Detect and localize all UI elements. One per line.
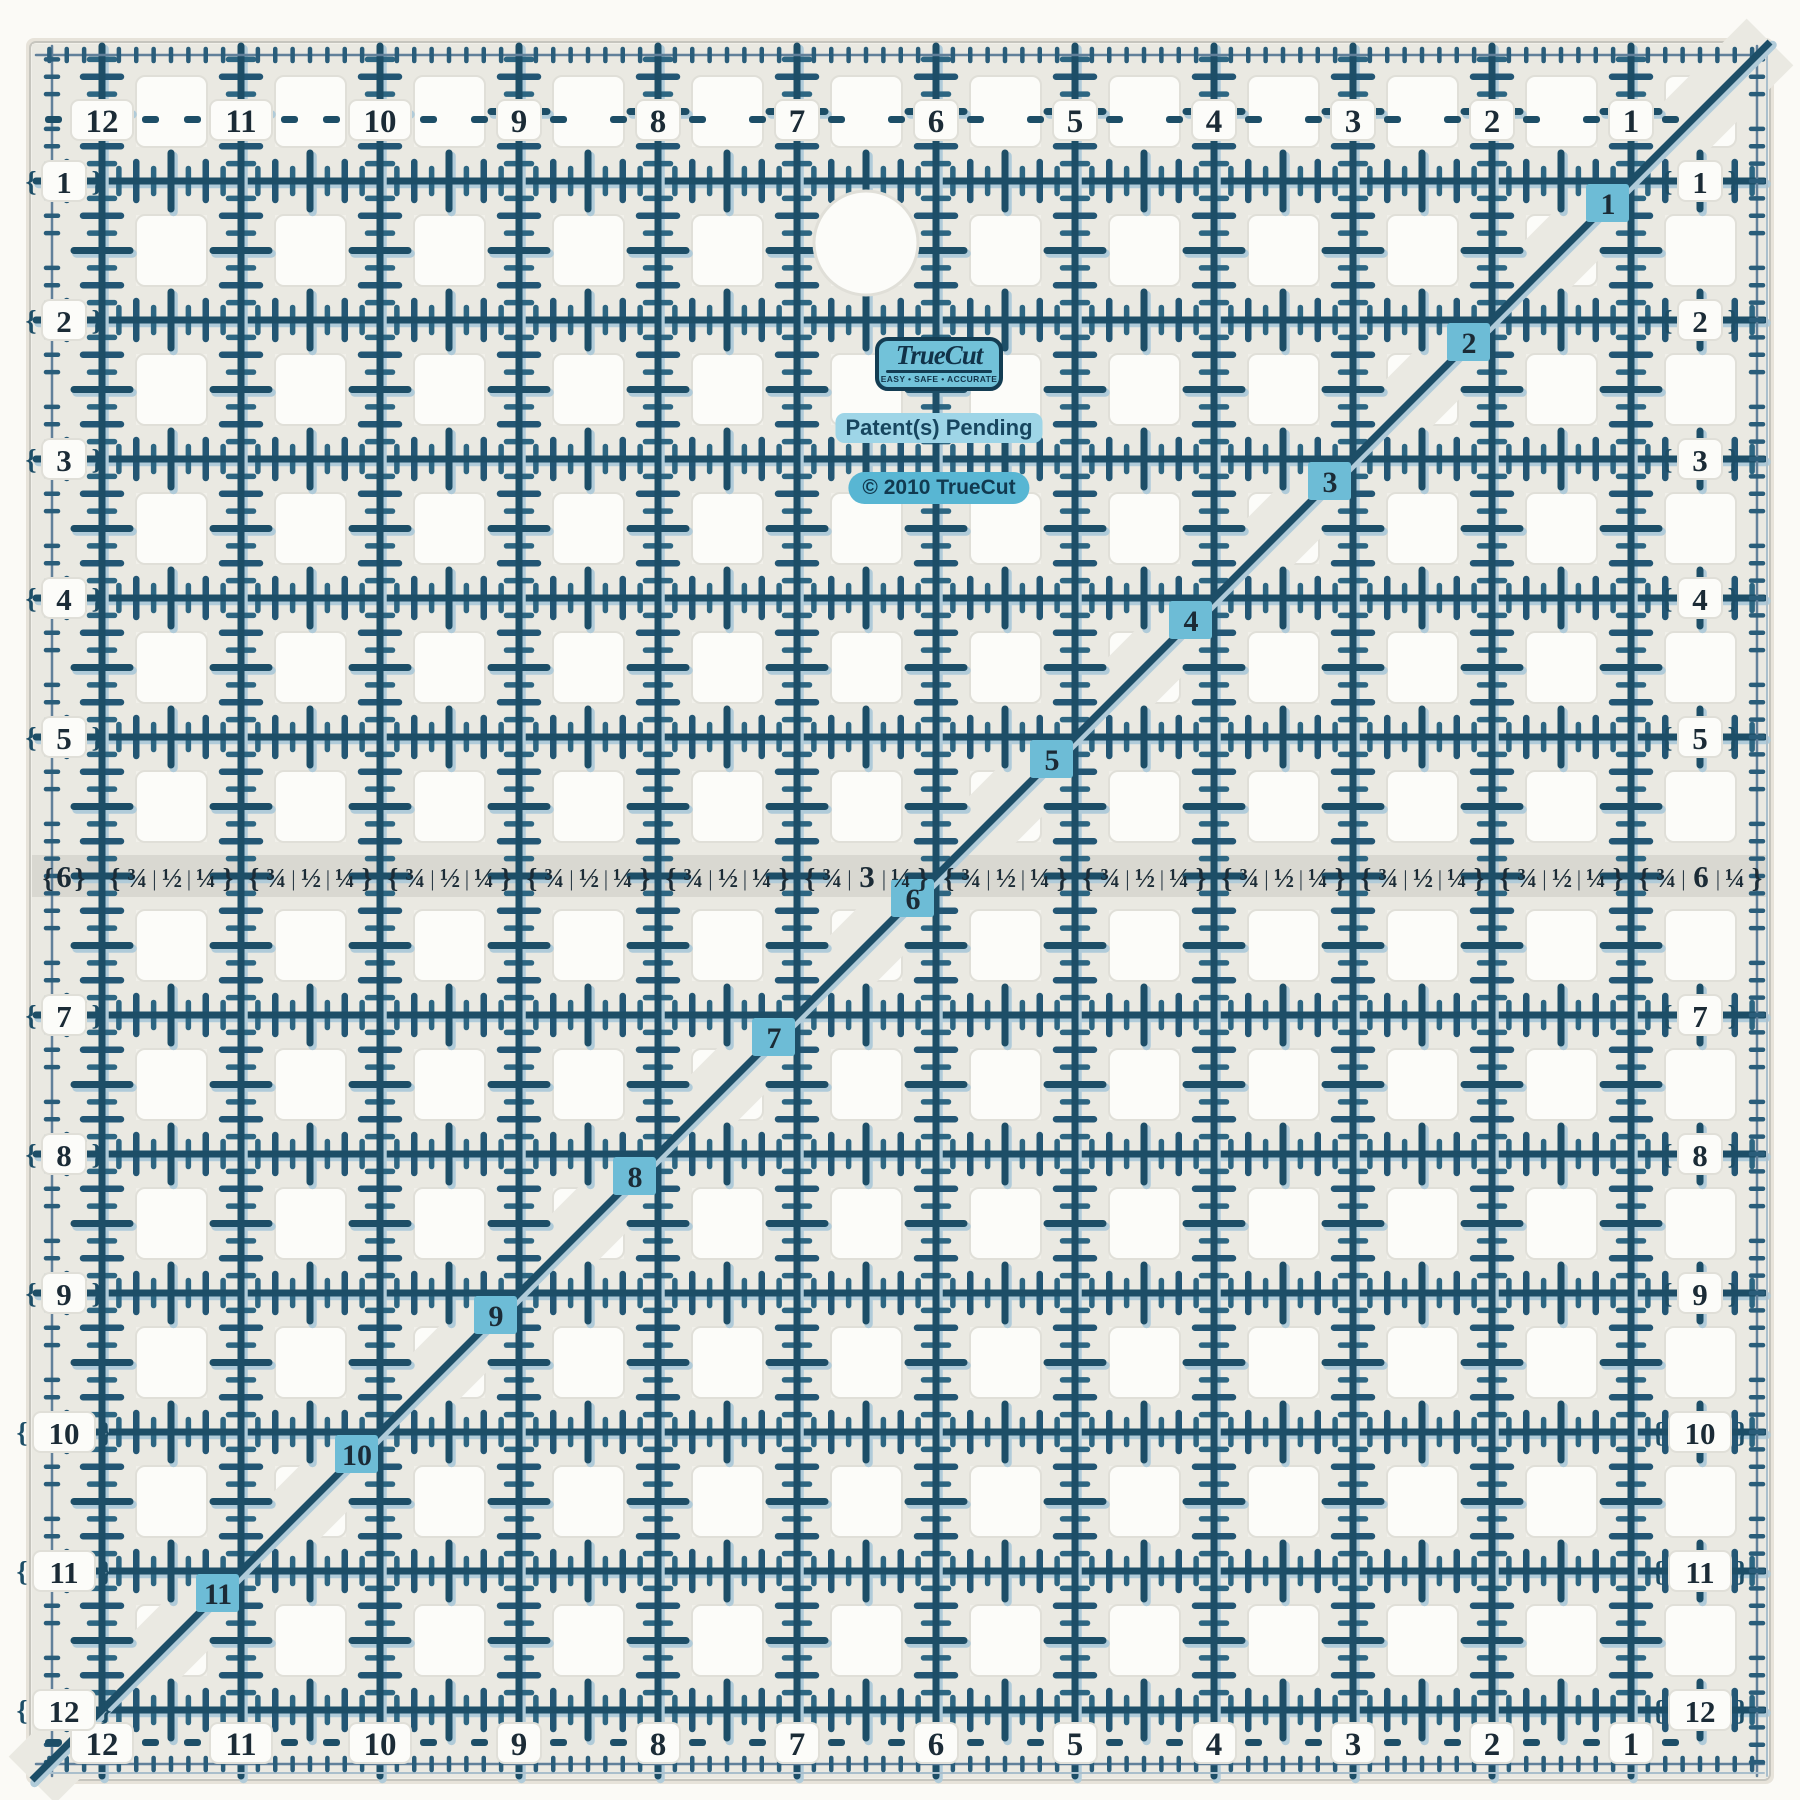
svg-text:3: 3: [1345, 104, 1362, 140]
svg-text:{: {: [1652, 1696, 1663, 1727]
svg-text:}: }: [1727, 1001, 1738, 1032]
svg-text:}: }: [1727, 167, 1738, 198]
svg-text:}: }: [1335, 863, 1346, 893]
svg-text:7: 7: [56, 999, 72, 1034]
svg-text:11: 11: [1685, 1555, 1714, 1590]
svg-text:3: 3: [1692, 443, 1708, 478]
svg-text:}: }: [501, 863, 512, 893]
svg-text:}: }: [91, 1140, 102, 1171]
svg-text:1: 1: [1692, 165, 1708, 200]
svg-text:10: 10: [364, 104, 397, 140]
svg-text:¼: ¼: [1725, 863, 1745, 893]
svg-text:{: {: [1652, 1418, 1663, 1449]
svg-text:{: {: [1500, 863, 1511, 893]
svg-text:|: |: [1542, 866, 1546, 891]
svg-text:7: 7: [1692, 999, 1708, 1034]
svg-text:}: }: [100, 1696, 111, 1727]
svg-text:|: |: [882, 866, 886, 891]
svg-text:6: 6: [928, 1727, 945, 1763]
svg-text:½: ½: [440, 863, 460, 893]
svg-text:8: 8: [628, 1161, 643, 1194]
svg-text:5: 5: [1067, 104, 1084, 140]
svg-text:|: |: [1125, 866, 1129, 891]
fraction-strip-labels: {6}{¾|½|¼}{¾|½|¼}{¾|½|¼}{¾|½|¼}{¾|½|¼}{¾…: [43, 859, 1763, 894]
svg-text:4: 4: [56, 582, 72, 617]
svg-text:}: }: [1727, 445, 1738, 476]
svg-text:{: {: [1661, 584, 1672, 615]
svg-text:2: 2: [1462, 327, 1477, 360]
svg-text:|: |: [708, 866, 712, 891]
patent-pending-text: Patent(s) Pending: [835, 413, 1042, 443]
svg-text:6: 6: [1693, 859, 1709, 894]
svg-text:|: |: [1021, 866, 1025, 891]
svg-text:}: }: [91, 584, 102, 615]
svg-text:|: |: [1160, 866, 1164, 891]
svg-text:|: |: [326, 866, 330, 891]
svg-text:½: ½: [1552, 863, 1572, 893]
svg-text:11: 11: [225, 104, 256, 140]
svg-text:¾: ¾: [1100, 863, 1120, 893]
svg-text:¼: ¼: [891, 863, 911, 893]
svg-text:9: 9: [1692, 1277, 1708, 1312]
svg-text:{: {: [1661, 1140, 1672, 1171]
svg-text:10: 10: [342, 1439, 372, 1472]
svg-text:}: }: [1727, 723, 1738, 754]
svg-text:{: {: [1639, 863, 1650, 893]
svg-text:}: }: [1057, 863, 1068, 893]
svg-text:|: |: [152, 866, 156, 891]
svg-text:8: 8: [56, 1138, 72, 1173]
svg-text:¼: ¼: [613, 863, 633, 893]
svg-text:{: {: [25, 1001, 36, 1032]
svg-text:¾: ¾: [1378, 863, 1398, 893]
svg-text:}: }: [779, 863, 790, 893]
svg-text:|: |: [569, 866, 573, 891]
svg-text:1: 1: [1623, 1727, 1640, 1763]
svg-text:6: 6: [56, 859, 72, 894]
svg-text:|: |: [847, 866, 851, 891]
svg-text:}: }: [75, 863, 86, 893]
quilting-ruler-grid: 121110987654321121110987654321{}1{}2{}3{…: [0, 0, 1800, 1800]
circle-notch: [814, 191, 918, 295]
svg-text:2: 2: [1484, 1727, 1501, 1763]
svg-text:}: }: [918, 863, 929, 893]
svg-text:{: {: [25, 445, 36, 476]
svg-text:11: 11: [204, 1578, 232, 1611]
svg-text:9: 9: [489, 1300, 504, 1333]
svg-text:}: }: [91, 1279, 102, 1310]
svg-text:¾: ¾: [1517, 863, 1537, 893]
svg-text:}: }: [1196, 863, 1207, 893]
svg-text:7: 7: [789, 1727, 806, 1763]
copyright-badge: © 2010 TrueCut: [848, 472, 1029, 504]
svg-text:¾: ¾: [1239, 863, 1259, 893]
svg-text:¼: ¼: [474, 863, 494, 893]
svg-text:8: 8: [650, 1727, 667, 1763]
svg-text:}: }: [1474, 863, 1485, 893]
svg-text:5: 5: [1045, 744, 1060, 777]
svg-text:}: }: [100, 1418, 111, 1449]
svg-text:|: |: [1577, 866, 1581, 891]
svg-text:|: |: [187, 866, 191, 891]
svg-text:½: ½: [718, 863, 738, 893]
svg-text:{: {: [25, 1279, 36, 1310]
svg-text:9: 9: [56, 1277, 72, 1312]
svg-text:¾: ¾: [405, 863, 425, 893]
svg-text:|: |: [1681, 866, 1685, 891]
svg-text:3: 3: [56, 443, 72, 478]
svg-text:{: {: [1083, 863, 1094, 893]
svg-text:¾: ¾: [266, 863, 286, 893]
svg-text:¾: ¾: [822, 863, 842, 893]
svg-text:11: 11: [49, 1555, 78, 1590]
svg-text:}: }: [640, 863, 651, 893]
svg-text:{: {: [110, 863, 121, 893]
svg-text:}: }: [91, 723, 102, 754]
svg-text:1: 1: [1623, 104, 1640, 140]
svg-text:5: 5: [1692, 721, 1708, 756]
svg-text:|: |: [986, 866, 990, 891]
truecut-logo-badge: TrueCut EASY • SAFE • ACCURATE: [875, 337, 1003, 391]
svg-text:}: }: [1727, 306, 1738, 337]
svg-text:|: |: [1403, 866, 1407, 891]
svg-text:{: {: [16, 1557, 27, 1588]
svg-text:½: ½: [1274, 863, 1294, 893]
svg-text:|: |: [465, 866, 469, 891]
svg-text:{: {: [1661, 167, 1672, 198]
svg-text:3: 3: [859, 859, 875, 894]
svg-text:½: ½: [579, 863, 599, 893]
svg-text:}: }: [1736, 1557, 1747, 1588]
svg-text:¼: ¼: [1586, 863, 1606, 893]
svg-text:{: {: [805, 863, 816, 893]
svg-text:{: {: [666, 863, 677, 893]
svg-text:¼: ¼: [1447, 863, 1467, 893]
svg-text:4: 4: [1206, 104, 1223, 140]
svg-text:}: }: [91, 306, 102, 337]
svg-text:¾: ¾: [683, 863, 703, 893]
svg-text:}: }: [91, 167, 102, 198]
svg-text:{: {: [1661, 1001, 1672, 1032]
svg-text:10: 10: [49, 1416, 80, 1451]
svg-text:2: 2: [1692, 304, 1708, 339]
svg-text:{: {: [944, 863, 955, 893]
svg-text:½: ½: [996, 863, 1016, 893]
svg-text:¼: ¼: [196, 863, 216, 893]
svg-text:}: }: [1736, 1418, 1747, 1449]
svg-text:{: {: [25, 306, 36, 337]
svg-text:}: }: [1736, 1696, 1747, 1727]
svg-text:{: {: [43, 863, 54, 893]
svg-text:¼: ¼: [335, 863, 355, 893]
svg-text:{: {: [1222, 863, 1233, 893]
svg-text:4: 4: [1692, 582, 1708, 617]
svg-text:9: 9: [511, 104, 528, 140]
svg-text:1: 1: [1601, 188, 1616, 221]
svg-text:{: {: [25, 584, 36, 615]
svg-text:8: 8: [1692, 1138, 1708, 1173]
svg-text:12: 12: [86, 104, 119, 140]
svg-text:½: ½: [1135, 863, 1155, 893]
svg-text:}: }: [91, 445, 102, 476]
svg-text:1: 1: [56, 165, 72, 200]
truecut-wordmark: TrueCut: [879, 342, 999, 369]
svg-text:{: {: [1661, 723, 1672, 754]
svg-text:|: |: [291, 866, 295, 891]
svg-text:½: ½: [301, 863, 321, 893]
svg-text:12: 12: [49, 1694, 80, 1729]
svg-text:½: ½: [162, 863, 182, 893]
svg-text:|: |: [1438, 866, 1442, 891]
svg-text:|: |: [1716, 866, 1720, 891]
svg-text:4: 4: [1184, 605, 1199, 638]
svg-text:¾: ¾: [1656, 863, 1676, 893]
svg-text:{: {: [16, 1696, 27, 1727]
logo-tagline: EASY • SAFE • ACCURATE: [879, 374, 999, 385]
svg-text:|: |: [604, 866, 608, 891]
svg-text:¼: ¼: [1030, 863, 1050, 893]
svg-text:5: 5: [1067, 1727, 1084, 1763]
svg-text:}: }: [1752, 863, 1763, 893]
svg-text:2: 2: [56, 304, 72, 339]
svg-text:¾: ¾: [544, 863, 564, 893]
svg-text:10: 10: [364, 1727, 397, 1763]
logo-divider: [886, 370, 992, 373]
svg-text:3: 3: [1345, 1727, 1362, 1763]
svg-text:7: 7: [767, 1022, 782, 1055]
svg-text:½: ½: [1413, 863, 1433, 893]
svg-text:{: {: [527, 863, 538, 893]
svg-text:4: 4: [1206, 1727, 1223, 1763]
svg-text:{: {: [1661, 445, 1672, 476]
svg-text:{: {: [249, 863, 260, 893]
svg-text:}: }: [362, 863, 373, 893]
svg-text:¼: ¼: [1308, 863, 1328, 893]
svg-text:}: }: [100, 1557, 111, 1588]
svg-text:10: 10: [1685, 1416, 1716, 1451]
svg-text:}: }: [1727, 1279, 1738, 1310]
svg-text:3: 3: [1323, 466, 1338, 499]
svg-text:|: |: [1299, 866, 1303, 891]
svg-text:|: |: [743, 866, 747, 891]
svg-text:}: }: [223, 863, 234, 893]
svg-text:|: |: [430, 866, 434, 891]
svg-text:}: }: [1613, 863, 1624, 893]
svg-text:{: {: [1661, 306, 1672, 337]
svg-text:2: 2: [1484, 104, 1501, 140]
svg-text:{: {: [1361, 863, 1372, 893]
svg-text:}: }: [91, 1001, 102, 1032]
svg-text:{: {: [1652, 1557, 1663, 1588]
svg-text:{: {: [388, 863, 399, 893]
svg-text:}: }: [1727, 584, 1738, 615]
svg-text:{: {: [25, 167, 36, 198]
svg-text:}: }: [1727, 1140, 1738, 1171]
svg-text:|: |: [1264, 866, 1268, 891]
svg-text:7: 7: [789, 104, 806, 140]
svg-text:12: 12: [1685, 1694, 1716, 1729]
svg-text:{: {: [25, 723, 36, 754]
svg-text:5: 5: [56, 721, 72, 756]
svg-text:6: 6: [928, 104, 945, 140]
ruler-photo-stage: 121110987654321121110987654321{}1{}2{}3{…: [0, 0, 1800, 1800]
svg-text:9: 9: [511, 1727, 528, 1763]
svg-text:{: {: [25, 1140, 36, 1171]
svg-text:8: 8: [650, 104, 667, 140]
svg-text:12: 12: [86, 1727, 119, 1763]
svg-text:11: 11: [225, 1727, 256, 1763]
svg-text:¾: ¾: [961, 863, 981, 893]
svg-text:¼: ¼: [752, 863, 772, 893]
svg-text:¼: ¼: [1169, 863, 1189, 893]
svg-text:{: {: [16, 1418, 27, 1449]
svg-text:¾: ¾: [127, 863, 147, 893]
svg-text:{: {: [1661, 1279, 1672, 1310]
